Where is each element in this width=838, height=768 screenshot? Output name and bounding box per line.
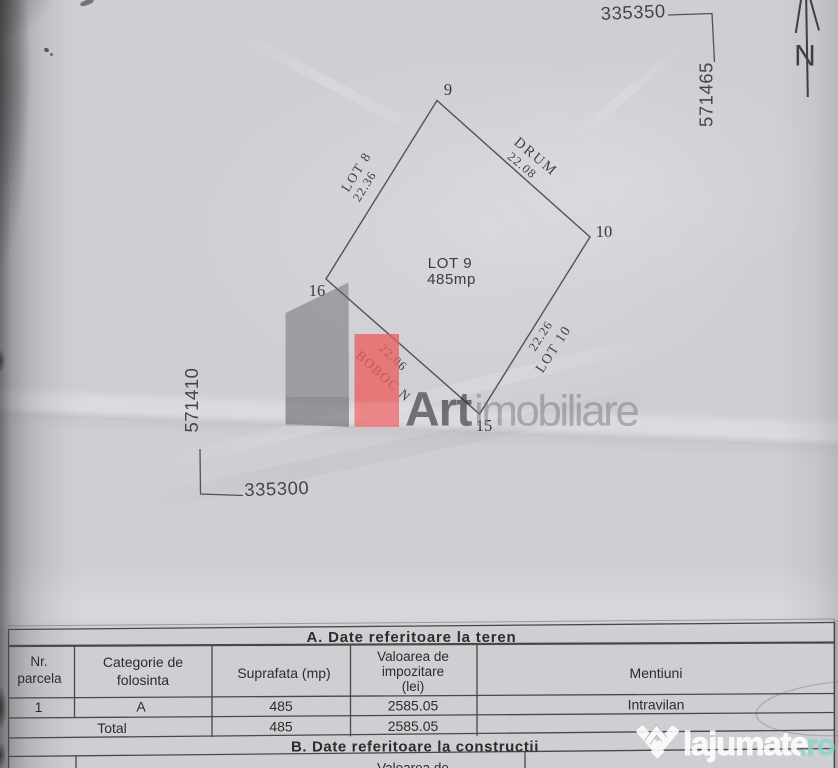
svg-text:A: A bbox=[136, 699, 146, 715]
svg-text:2585.05: 2585.05 bbox=[388, 698, 439, 714]
svg-text:.ro: .ro bbox=[799, 729, 835, 762]
svg-text:571465: 571465 bbox=[696, 62, 717, 127]
svg-text:Categorie de: Categorie de bbox=[103, 654, 183, 670]
svg-text:folosinta: folosinta bbox=[117, 672, 169, 688]
svg-text:Art: Art bbox=[405, 384, 472, 437]
svg-text:Valoarea de: Valoarea de bbox=[377, 649, 449, 664]
svg-text:Suprafata (mp): Suprafata (mp) bbox=[237, 665, 330, 681]
svg-text:485: 485 bbox=[269, 698, 293, 714]
svg-text:(lei): (lei) bbox=[402, 679, 425, 694]
svg-text:9: 9 bbox=[444, 80, 452, 99]
svg-text:571410: 571410 bbox=[181, 368, 202, 433]
svg-text:LOT 9: LOT 9 bbox=[428, 255, 472, 272]
svg-text:485mp: 485mp bbox=[427, 271, 476, 288]
svg-text:2585.05: 2585.05 bbox=[388, 718, 439, 734]
svg-text:Mentiuni: Mentiuni bbox=[630, 665, 683, 681]
svg-text:A. Date referitoare la teren: A. Date referitoare la teren bbox=[307, 629, 517, 646]
svg-text:Intravilan: Intravilan bbox=[628, 697, 685, 713]
svg-text:N: N bbox=[794, 40, 816, 73]
svg-text:B. Date referitoare la constru: B. Date referitoare la constructii bbox=[291, 739, 539, 756]
svg-text:parcela: parcela bbox=[17, 671, 62, 686]
svg-text:imobiliare: imobiliare bbox=[474, 387, 638, 436]
svg-text:impozitare: impozitare bbox=[382, 664, 444, 679]
svg-text:335300: 335300 bbox=[244, 477, 310, 500]
svg-text:Valoarea de: Valoarea de bbox=[377, 761, 449, 768]
svg-text:lajumate: lajumate bbox=[683, 725, 808, 762]
svg-text:485: 485 bbox=[269, 719, 293, 735]
svg-text:10: 10 bbox=[596, 222, 613, 241]
svg-text:Nr.: Nr. bbox=[30, 654, 47, 669]
svg-text:Total: Total bbox=[97, 720, 127, 736]
svg-text:335350: 335350 bbox=[600, 0, 666, 24]
svg-text:1: 1 bbox=[35, 699, 43, 715]
